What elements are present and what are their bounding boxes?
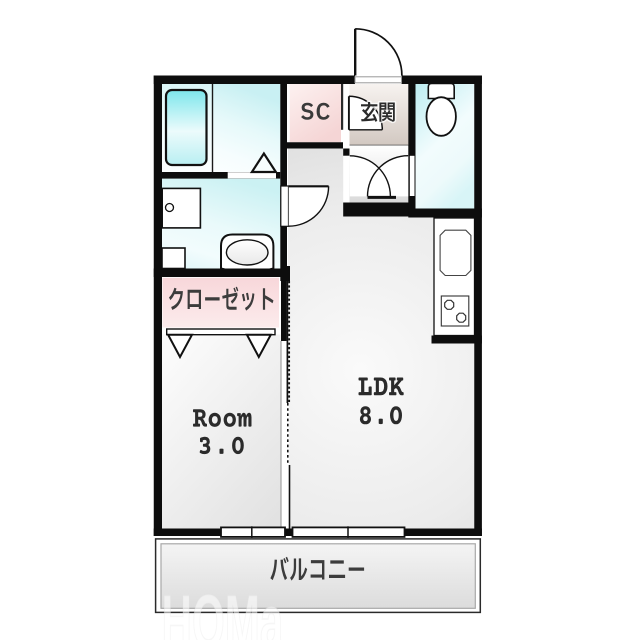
svg-text:HOMa: HOMa (162, 580, 284, 640)
